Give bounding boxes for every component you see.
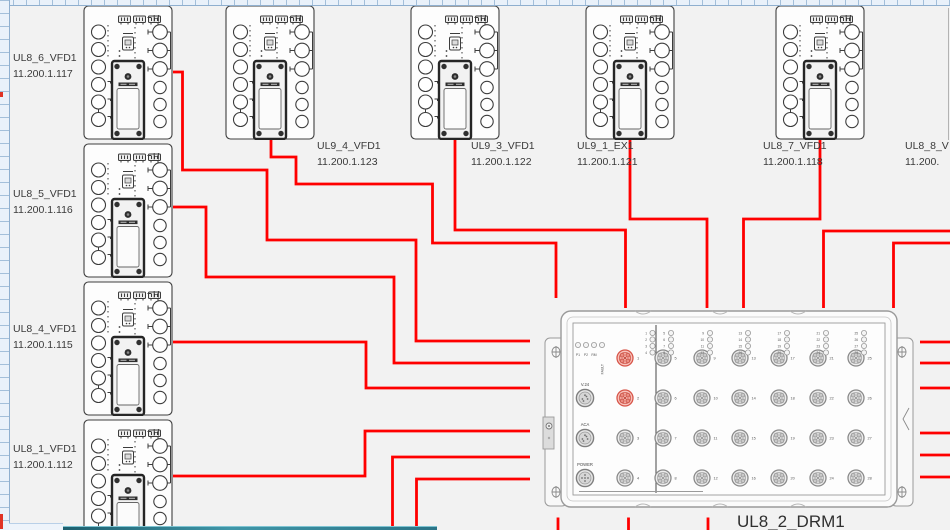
port xyxy=(810,470,826,486)
cable-ul9_1_ex1[interactable] xyxy=(630,140,707,308)
svg-text:22: 22 xyxy=(816,338,820,342)
svg-text:13: 13 xyxy=(752,357,756,361)
svg-text:26: 26 xyxy=(868,397,872,401)
top-ruler xyxy=(0,0,950,6)
grid-corner xyxy=(9,523,63,530)
aux-port xyxy=(576,429,593,446)
device-ip: 11.200.1.123 xyxy=(317,154,381,170)
svg-text:2: 2 xyxy=(645,338,647,342)
device-name: UL9_3_VFD1 xyxy=(471,138,535,154)
svg-text:24: 24 xyxy=(830,477,834,481)
port xyxy=(732,430,748,446)
device-ul9_4-vfd1[interactable] xyxy=(226,6,314,139)
svg-text:15: 15 xyxy=(738,345,742,349)
ruler-red-mark-2 xyxy=(0,514,3,529)
port xyxy=(655,470,671,486)
svg-text:27: 27 xyxy=(854,345,858,349)
label-ul8_1-vfd1: UL8_1_VFD1 11.200.1.112 xyxy=(13,441,77,473)
svg-text:28: 28 xyxy=(854,351,858,355)
device-name: UL8_5_VFD1 xyxy=(13,186,77,202)
svg-text:RM: RM xyxy=(591,353,596,357)
port xyxy=(617,470,633,486)
svg-text:21: 21 xyxy=(830,357,834,361)
svg-text:23: 23 xyxy=(830,437,834,441)
svg-text:25: 25 xyxy=(868,357,872,361)
port xyxy=(848,390,864,406)
svg-text:25: 25 xyxy=(854,332,858,336)
svg-text:19: 19 xyxy=(791,437,795,441)
svg-text:14: 14 xyxy=(738,338,742,342)
device-name: UL8_6_VFD1 xyxy=(13,50,77,66)
port-highlighted xyxy=(617,390,633,406)
label-ul9_3-vfd1: UL9_3_VFD1 11.200.1.122 xyxy=(471,138,535,170)
svg-text:7: 7 xyxy=(663,345,665,349)
device-ip: 11.200.1.121 xyxy=(577,154,638,170)
svg-text:12: 12 xyxy=(700,351,704,355)
label-ul8_7-vfd1: UL8_7_VFD1 11.200.1.118 xyxy=(763,138,827,170)
svg-text:20: 20 xyxy=(777,351,781,355)
svg-text:1: 1 xyxy=(645,332,647,336)
cable-ul8_1_vfd1[interactable] xyxy=(173,431,530,476)
device-name: UL8_4_VFD1 xyxy=(13,321,77,337)
port-highlighted xyxy=(617,350,633,366)
svg-text:V.24: V.24 xyxy=(581,382,590,387)
offscreen-device-edge xyxy=(948,8,949,140)
port xyxy=(655,390,671,406)
label-ul9_1-ex1: UL9_1_EX1 11.200.1.121 xyxy=(577,138,638,170)
diagram-canvas: H xyxy=(0,0,950,530)
svg-text:22: 22 xyxy=(830,397,834,401)
svg-text:17: 17 xyxy=(777,332,781,336)
svg-text:11: 11 xyxy=(714,437,718,441)
ruler-red-mark-1 xyxy=(0,92,3,97)
port xyxy=(617,430,633,446)
port xyxy=(732,470,748,486)
device-ul8_4-vfd1[interactable] xyxy=(84,282,172,415)
port xyxy=(694,390,710,406)
svg-text:4: 4 xyxy=(645,351,647,355)
cable-ul8_4_vfd1[interactable] xyxy=(173,342,530,388)
device-name: UL9_1_EX1 xyxy=(577,138,638,154)
svg-text:12: 12 xyxy=(714,477,718,481)
svg-text:7: 7 xyxy=(675,437,677,441)
label-ul8_6-vfd1: UL8_6_VFD1 11.200.1.117 xyxy=(13,50,77,82)
svg-text:27: 27 xyxy=(868,437,872,441)
port xyxy=(810,430,826,446)
svg-text:15: 15 xyxy=(752,437,756,441)
port xyxy=(848,430,864,446)
device-name: UL8_8_V xyxy=(905,138,949,154)
svg-text:6: 6 xyxy=(663,338,665,342)
svg-text:P1: P1 xyxy=(576,353,580,357)
svg-text:14: 14 xyxy=(752,397,756,401)
label-ul8_2-drm1: UL8_2_DRM1 xyxy=(737,512,845,530)
svg-text:8: 8 xyxy=(663,351,665,355)
device-name: UL8_1_VFD1 xyxy=(13,441,77,457)
left-ruler xyxy=(0,0,10,530)
port xyxy=(771,430,787,446)
device-ul8_6-vfd1[interactable] xyxy=(84,6,172,139)
device-ul9_1-ex1[interactable] xyxy=(586,6,674,139)
device-ip: 11.200.1.112 xyxy=(13,457,77,473)
svg-text:11: 11 xyxy=(701,345,705,349)
wiring-diagram: H xyxy=(0,0,950,530)
port xyxy=(810,390,826,406)
device-ul9_3-vfd1[interactable] xyxy=(411,6,499,139)
device-ip: 11.200.1.117 xyxy=(13,66,77,82)
svg-text:24: 24 xyxy=(816,351,820,355)
device-ul8_1-vfd1[interactable] xyxy=(84,420,172,530)
port xyxy=(848,470,864,486)
svg-text:8: 8 xyxy=(675,477,677,481)
svg-text:POWER: POWER xyxy=(577,462,593,467)
svg-text:26: 26 xyxy=(854,338,858,342)
svg-text:9: 9 xyxy=(714,357,716,361)
device-name: UL8_7_VFD1 xyxy=(763,138,827,154)
port xyxy=(694,430,710,446)
device-ip: 11.200.1.118 xyxy=(763,154,827,170)
aux-port xyxy=(576,389,593,406)
svg-text:17: 17 xyxy=(791,357,795,361)
cable-right-b[interactable] xyxy=(894,243,950,308)
svg-text:6: 6 xyxy=(675,397,677,401)
device-ul8_5-vfd1[interactable] xyxy=(84,144,172,277)
aux-port xyxy=(576,469,593,486)
svg-text:13: 13 xyxy=(738,332,742,336)
svg-text:P2: P2 xyxy=(584,353,588,357)
background-window-sliver xyxy=(63,526,437,530)
svg-text:21: 21 xyxy=(816,332,820,336)
cable-offscreen-bottom-a[interactable] xyxy=(393,457,531,527)
svg-text:9: 9 xyxy=(702,332,704,336)
svg-text:ACA: ACA xyxy=(581,422,590,427)
label-ul8_4-vfd1: UL8_4_VFD1 11.200.1.115 xyxy=(13,321,77,353)
device-name: UL9_4_VFD1 xyxy=(317,138,381,154)
svg-text:10: 10 xyxy=(714,397,718,401)
svg-text:23: 23 xyxy=(816,345,820,349)
port xyxy=(771,470,787,486)
port xyxy=(655,430,671,446)
label-ul8_5-vfd1: UL8_5_VFD1 11.200.1.116 xyxy=(13,186,77,218)
device-ul8_7-vfd1[interactable] xyxy=(776,6,864,139)
svg-text:FAULT: FAULT xyxy=(601,364,605,374)
svg-text:3: 3 xyxy=(645,345,647,349)
svg-text:10: 10 xyxy=(700,338,704,342)
svg-text:5: 5 xyxy=(663,332,665,336)
label-ul9_4-vfd1: UL9_4_VFD1 11.200.1.123 xyxy=(317,138,381,170)
device-ul8_2-drm1[interactable]: P1P2RMFAULT11223344V.24ACAPOWER556677889… xyxy=(543,311,913,507)
cable-offscreen-bottom-b[interactable] xyxy=(417,479,531,527)
svg-text:16: 16 xyxy=(752,477,756,481)
device-ip: 11.200.1.122 xyxy=(471,154,535,170)
port xyxy=(732,390,748,406)
device-ip: 11.200.1.115 xyxy=(13,337,77,353)
svg-text:18: 18 xyxy=(791,397,795,401)
svg-text:28: 28 xyxy=(868,477,872,481)
svg-text:18: 18 xyxy=(777,338,781,342)
svg-text:5: 5 xyxy=(675,357,677,361)
svg-text:20: 20 xyxy=(791,477,795,481)
device-ip: 11.200.1.116 xyxy=(13,202,77,218)
device-ip: 11.200. xyxy=(905,154,949,170)
port xyxy=(771,390,787,406)
svg-text:16: 16 xyxy=(738,351,742,355)
svg-text:19: 19 xyxy=(777,345,781,349)
label-ul8_8-vfd1-partial: UL8_8_V 11.200. xyxy=(905,138,949,170)
port xyxy=(694,470,710,486)
